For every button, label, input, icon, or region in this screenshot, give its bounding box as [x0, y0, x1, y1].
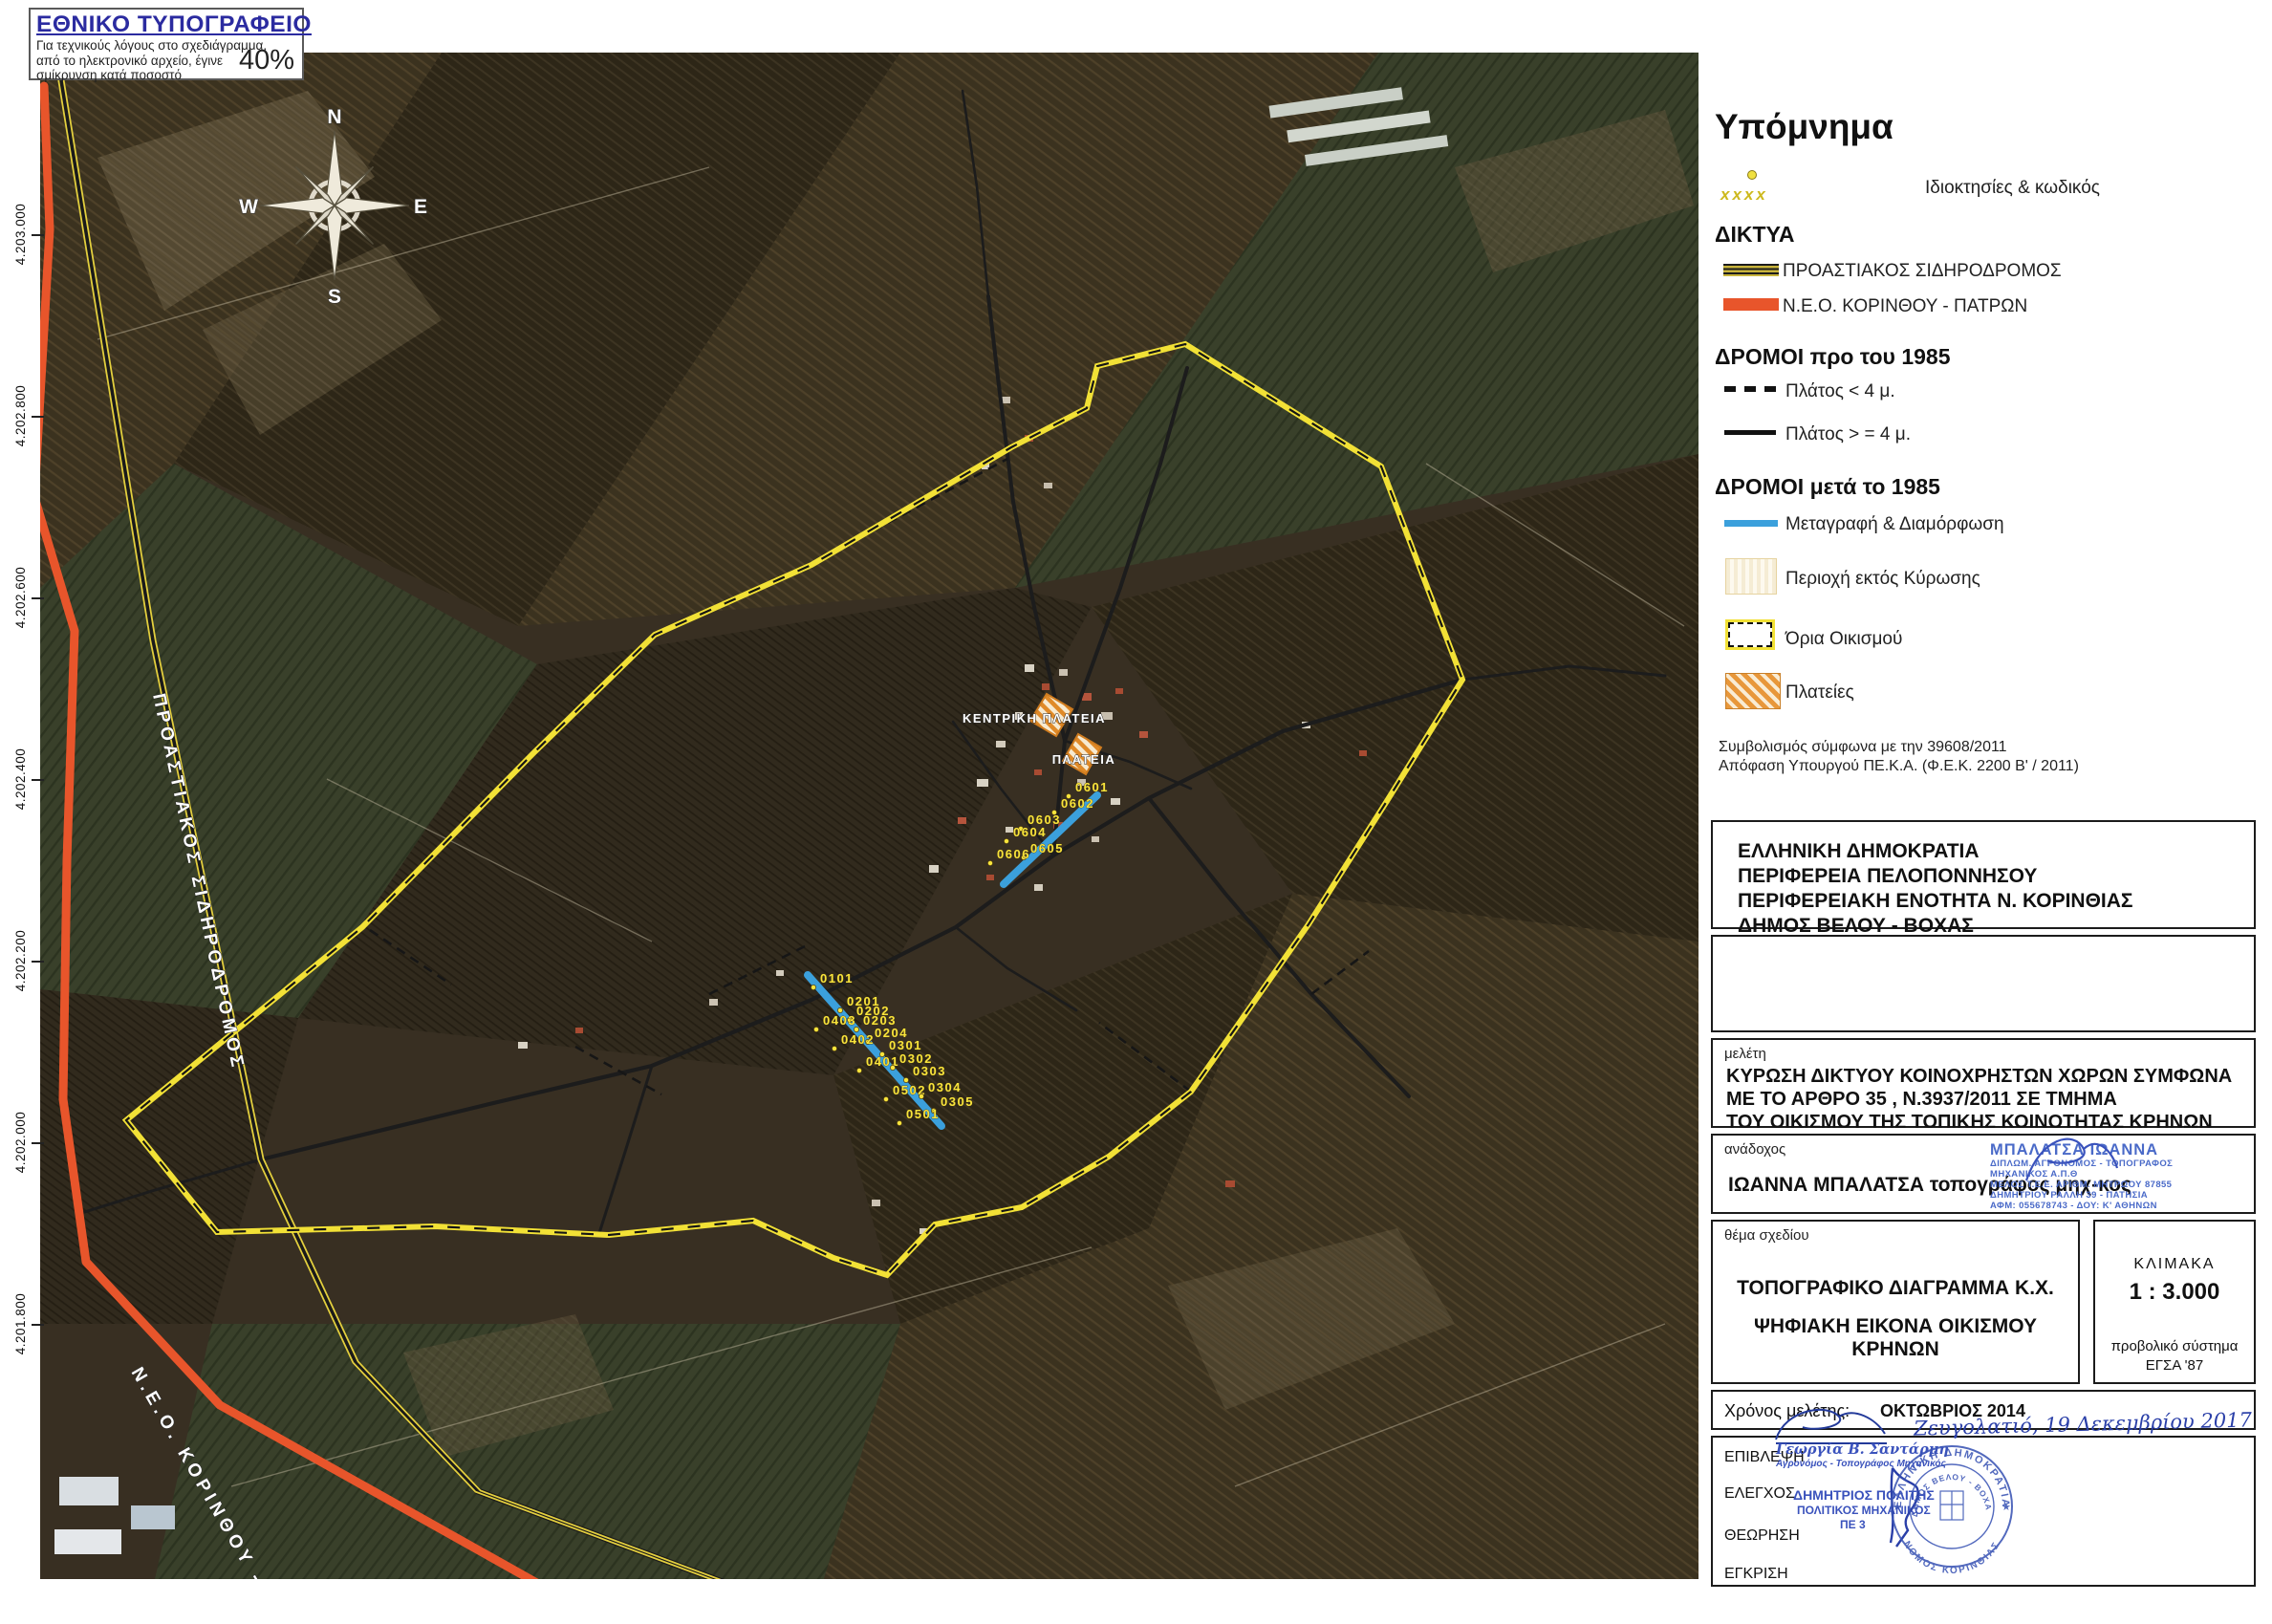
svg-text:ΝΟΜΟΣ ΚΟΡΙΝΘΙΑΣ: ΝΟΜΟΣ ΚΟΡΙΝΘΙΑΣ	[1901, 1540, 2002, 1573]
grid-tick	[32, 416, 44, 418]
wide-road-symbol	[1724, 430, 1776, 435]
grid-coordinate-label: 4.202.200	[13, 924, 29, 997]
parcel-code-label: 0301	[889, 1038, 922, 1052]
study-label: μελέτη	[1724, 1046, 1766, 1062]
outside-ratification-symbol	[1725, 558, 1777, 595]
parcel-code-dot	[897, 1120, 901, 1125]
approval-label: ΕΓΚΡΙΣΗ	[1724, 1566, 1788, 1583]
projection-label: προβολικό σύστημα	[2095, 1338, 2254, 1354]
plazas-label: Πλατείες	[1785, 682, 1854, 704]
round-stamp-star-right: ★	[2002, 1502, 2011, 1513]
round-stamp-star-left: ★	[1893, 1502, 1902, 1513]
contractor-stamp-line-6: ΑΦΜ: 055678743 - ΔΟΥ: Κ' ΑΘΗΝΩΝ	[1990, 1201, 2181, 1211]
ownership-codes-label: Ιδιοκτησίες & κωδικός	[1925, 178, 2100, 199]
parcel-code-dot	[854, 1027, 858, 1031]
review-label: ΘΕΩΡΗΣΗ	[1724, 1527, 1800, 1545]
parcel-code-label: 0601	[1075, 780, 1109, 794]
authority-line-1: ΕΛΛΗΝΙΚΗ ΔΗΜΟΚΡΑΤΙΑ	[1738, 839, 2254, 864]
theme-label: θέμα σχεδίου	[1724, 1227, 1809, 1244]
highway-symbol	[1723, 298, 1779, 311]
engineer-grade: ΠΕ 3	[1840, 1518, 1866, 1531]
supervisor-signature	[1768, 1401, 1893, 1447]
parcel-code-dot	[890, 1065, 895, 1070]
authority-box: ΕΛΛΗΝΙΚΗ ΔΗΜΟΚΡΑΤΙΑ ΠΕΡΙΦΕΡΕΙΑ ΠΕΛΟΠΟΝΝΗ…	[1711, 820, 2256, 929]
round-stamp-bottom-text: ΝΟΜΟΣ ΚΟΡΙΝΘΙΑΣ	[1901, 1540, 2002, 1573]
legend-note-line2: Απόφαση Υπουργού ΠΕ.Κ.Α. (Φ.Ε.Κ. 2200 Β'…	[1719, 757, 2079, 776]
study-line-2: ΜΕ ΤΟ ΑΡΘΡΟ 35 , Ν.3937/2011 ΣΕ ΤΜΗΜΑ	[1726, 1088, 2232, 1111]
xxxx-symbol-text: xxxx	[1720, 185, 1768, 205]
narrow-road-symbol	[1724, 386, 1776, 392]
check-label: ΕΛΕΓΧΟΣ	[1724, 1485, 1795, 1503]
parcel-code-dot	[919, 1093, 923, 1098]
railway-symbol	[1723, 264, 1779, 276]
grid-tick	[32, 1142, 44, 1144]
legend-title: Υπόμνημα	[1715, 107, 1893, 147]
grid-coordinate-label: 4.202.400	[13, 743, 29, 815]
parcel-code-dot	[856, 1068, 861, 1072]
parcel-code-label: 0304	[928, 1080, 962, 1094]
plaza-label: ΠΛΑΤΕΙΑ	[1052, 752, 1115, 767]
reduction-percent: 40%	[239, 45, 294, 76]
municipality-round-stamp: ΕΛΛΗΝΙΚΗ ΔΗΜΟΚΡΑΤΙΑ ΝΟΜΟΣ ΚΟΡΙΝΘΙΑΣ ΔΗΜΟ…	[1885, 1440, 2019, 1573]
roads-before-1985-header: ΔΡΟΜΟΙ προ του 1985	[1715, 344, 1951, 370]
parcel-code-dot	[1004, 838, 1008, 843]
grid-coordinates: 4.203.0004.202.8004.202.6004.202.4004.20…	[0, 0, 57, 1624]
compass-south-label: S	[328, 286, 341, 308]
authority-line-3: ΠΕΡΙΦΕΡΕΙΑΚΗ ΕΝΟΤΗΤΑ Ν. ΚΟΡΙΝΘΙΑΣ	[1738, 889, 2254, 914]
study-line-1: ΚΥΡΩΣΗ ΔΙΚΤΥΟΥ ΚΟΙΝΟΧΡΗΣΤΩΝ ΧΩΡΩΝ ΣΥΜΦΩΝ…	[1726, 1065, 2232, 1088]
parcel-code-label: 0605	[1030, 841, 1064, 855]
parcel-code-dot	[987, 860, 992, 865]
parcel-code-label: 0303	[913, 1064, 946, 1078]
legend-note-line1: Συμβολισμός σύμφωνα με την 39608/2011	[1719, 738, 2007, 757]
parcel-code-dot	[813, 1027, 818, 1031]
parcel-code-label: 0501	[906, 1107, 940, 1121]
parcel-code-label: 0403	[823, 1013, 856, 1028]
parcel-code-label: 0606	[997, 847, 1030, 861]
scale-label: ΚΛΙΜΑΚΑ	[2095, 1256, 2254, 1273]
networks-header: ΔΙΚΤΥΑ	[1715, 222, 1794, 248]
parcel-code-label: 0602	[1061, 796, 1094, 811]
empty-box	[1711, 935, 2256, 1032]
grid-coordinate-label: 4.202.000	[13, 1106, 29, 1179]
scale-box: ΚΛΙΜΑΚΑ 1 : 3.000 προβολικό σύστημα ΕΓΣΑ…	[2093, 1220, 2256, 1384]
projection-value: ΕΓΣΑ '87	[2095, 1357, 2254, 1374]
railway-legend-label: ΠΡΟΑΣΤΙΑΚΟΣ ΣΙΔΗΡΟΔΡΟΜΟΣ	[1783, 261, 2062, 282]
printing-office-title: ΕΘΝΙΚΟ ΤΥΠΟΓΡΑΦΕΙΟ	[36, 11, 296, 38]
grid-tick	[32, 234, 44, 236]
settlement-boundary-symbol	[1725, 619, 1775, 650]
parcel-code-dot	[903, 1077, 908, 1082]
parcel-code-label: 0402	[841, 1032, 875, 1047]
narrow-road-label: Πλάτος < 4 μ.	[1785, 381, 1895, 402]
central-plaza-label: ΚΕΝΤΡΙΚΗ ΠΛΑΤΕΙΑ	[963, 711, 1106, 725]
modified-road-symbol	[1724, 520, 1778, 527]
study-box: μελέτη ΚΥΡΩΣΗ ΔΙΚΤΥΟΥ ΚΟΙΝΟΧΡΗΣΤΩΝ ΧΩΡΩΝ…	[1711, 1038, 2256, 1128]
plazas-symbol	[1725, 673, 1781, 709]
grid-coordinate-label: 4.202.600	[13, 561, 29, 634]
theme-line-1: ΤΟΠΟΓΡΑΦΙΚΟ ΔΙΑΓΡΑΜΜΑ Κ.Χ.	[1713, 1277, 2078, 1300]
settlement-boundary-label: Όρια Οικισμού	[1785, 629, 1902, 650]
field-texture	[40, 53, 1699, 1579]
scale-value: 1 : 3.000	[2095, 1279, 2254, 1306]
parcel-code-dot	[883, 1096, 888, 1101]
parcel-code-label: 0305	[941, 1094, 974, 1109]
parcel-code-dot	[832, 1046, 836, 1050]
authority-line-2: ΠΕΡΙΦΕΡΕΙΑ ΠΕΛΟΠΟΝΝΗΣΟΥ	[1738, 864, 2254, 889]
grid-tick	[32, 961, 44, 963]
grid-coordinate-label: 4.201.800	[13, 1288, 29, 1360]
contractor-signature	[2017, 1128, 2122, 1195]
contractor-label: ανάδοχος	[1724, 1141, 1785, 1158]
study-line-3: ΤΟΥ ΟΙΚΙΣΜΟΥ ΤΗΣ ΤΟΠΙΚΗΣ ΚΟΙΝΟΤΗΤΑΣ ΚΡΗΝ…	[1726, 1111, 2232, 1134]
theme-box: θέμα σχεδίου ΤΟΠΟΓΡΑΦΙΚΟ ΔΙΑΓΡΑΜΜΑ Κ.Χ. …	[1711, 1220, 2080, 1384]
highway-legend-label: Ν.Ε.Ο. ΚΟΡΙΝΘΟΥ - ΠΑΤΡΩΝ	[1783, 296, 2027, 317]
round-stamp-emblem	[1940, 1491, 1963, 1520]
parcel-code-label: 0604	[1013, 825, 1047, 839]
compass-north-label: N	[327, 106, 341, 128]
parcel-code-label: 0101	[820, 971, 854, 985]
grid-tick	[32, 597, 44, 599]
modified-road-label: Μεταγραφή & Διαμόρφωση	[1785, 514, 2004, 535]
grid-tick	[32, 779, 44, 781]
map-canvas: ΚΕΝΤΡΙΚΗ ΠΛΑΤΕΙΑ ΠΛΑΤΕΙΑ 060106020603060…	[40, 53, 1699, 1579]
wide-road-label: Πλάτος > = 4 μ.	[1785, 424, 1911, 445]
printing-office-stamp: ΕΘΝΙΚΟ ΤΥΠΟΓΡΑΦΕΙΟ Για τεχνικούς λόγους …	[29, 8, 304, 80]
aerial-photo-map: ΚΕΝΤΡΙΚΗ ΠΛΑΤΕΙΑ ΠΛΑΤΕΙΑ 060106020603060…	[40, 53, 1699, 1579]
grid-tick	[32, 1324, 44, 1326]
settlement-boundary-symbol-inner	[1728, 622, 1772, 647]
compass-east-label: E	[414, 196, 427, 218]
roads-after-1985-header: ΔΡΟΜΟΙ μετά το 1985	[1715, 474, 1940, 500]
parcel-dot-icon	[1747, 170, 1757, 180]
ownership-codes-symbol: xxxx	[1720, 172, 1787, 206]
parcel-code-dot	[811, 985, 815, 989]
topographic-map-sheet: ΚΕΝΤΡΙΚΗ ΠΛΑΤΕΙΑ ΠΛΑΤΕΙΑ 060106020603060…	[0, 0, 2272, 1624]
grid-coordinate-label: 4.202.800	[13, 379, 29, 452]
outside-ratification-label: Περιοχή εκτός Κύρωσης	[1785, 569, 1980, 590]
theme-line-2: ΨΗΦΙΑΚΗ ΕΙΚΟΝΑ ΟΙΚΙΣΜΟΥ ΚΡΗΝΩΝ	[1713, 1315, 2078, 1361]
compass-west-label: W	[239, 196, 258, 218]
grid-coordinate-label: 4.203.000	[13, 198, 29, 271]
parcel-code-dot	[837, 1007, 842, 1012]
